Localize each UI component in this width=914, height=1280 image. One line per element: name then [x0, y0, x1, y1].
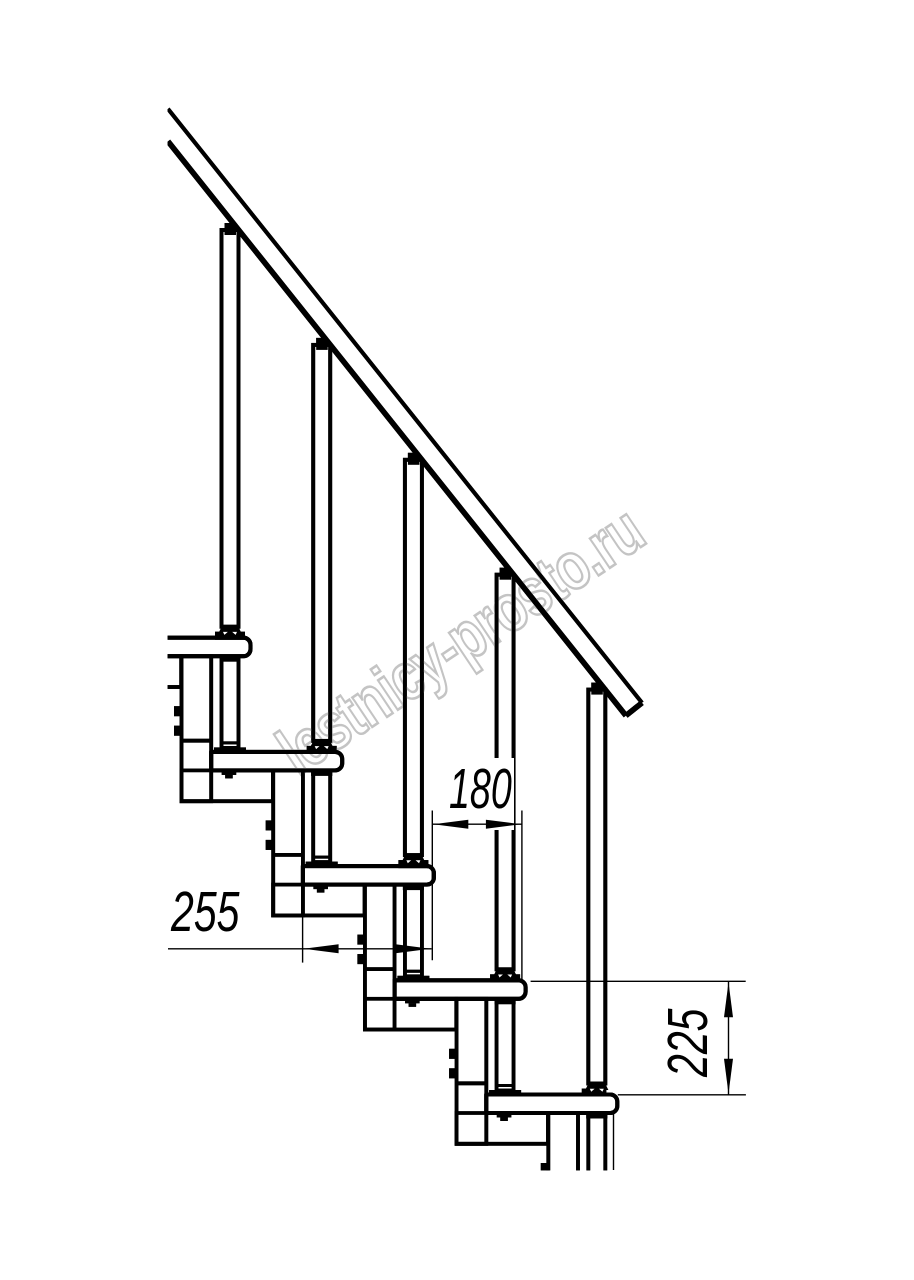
- svg-text:180: 180: [449, 757, 512, 821]
- svg-text:255: 255: [170, 879, 240, 943]
- svg-text:225: 225: [655, 1008, 719, 1078]
